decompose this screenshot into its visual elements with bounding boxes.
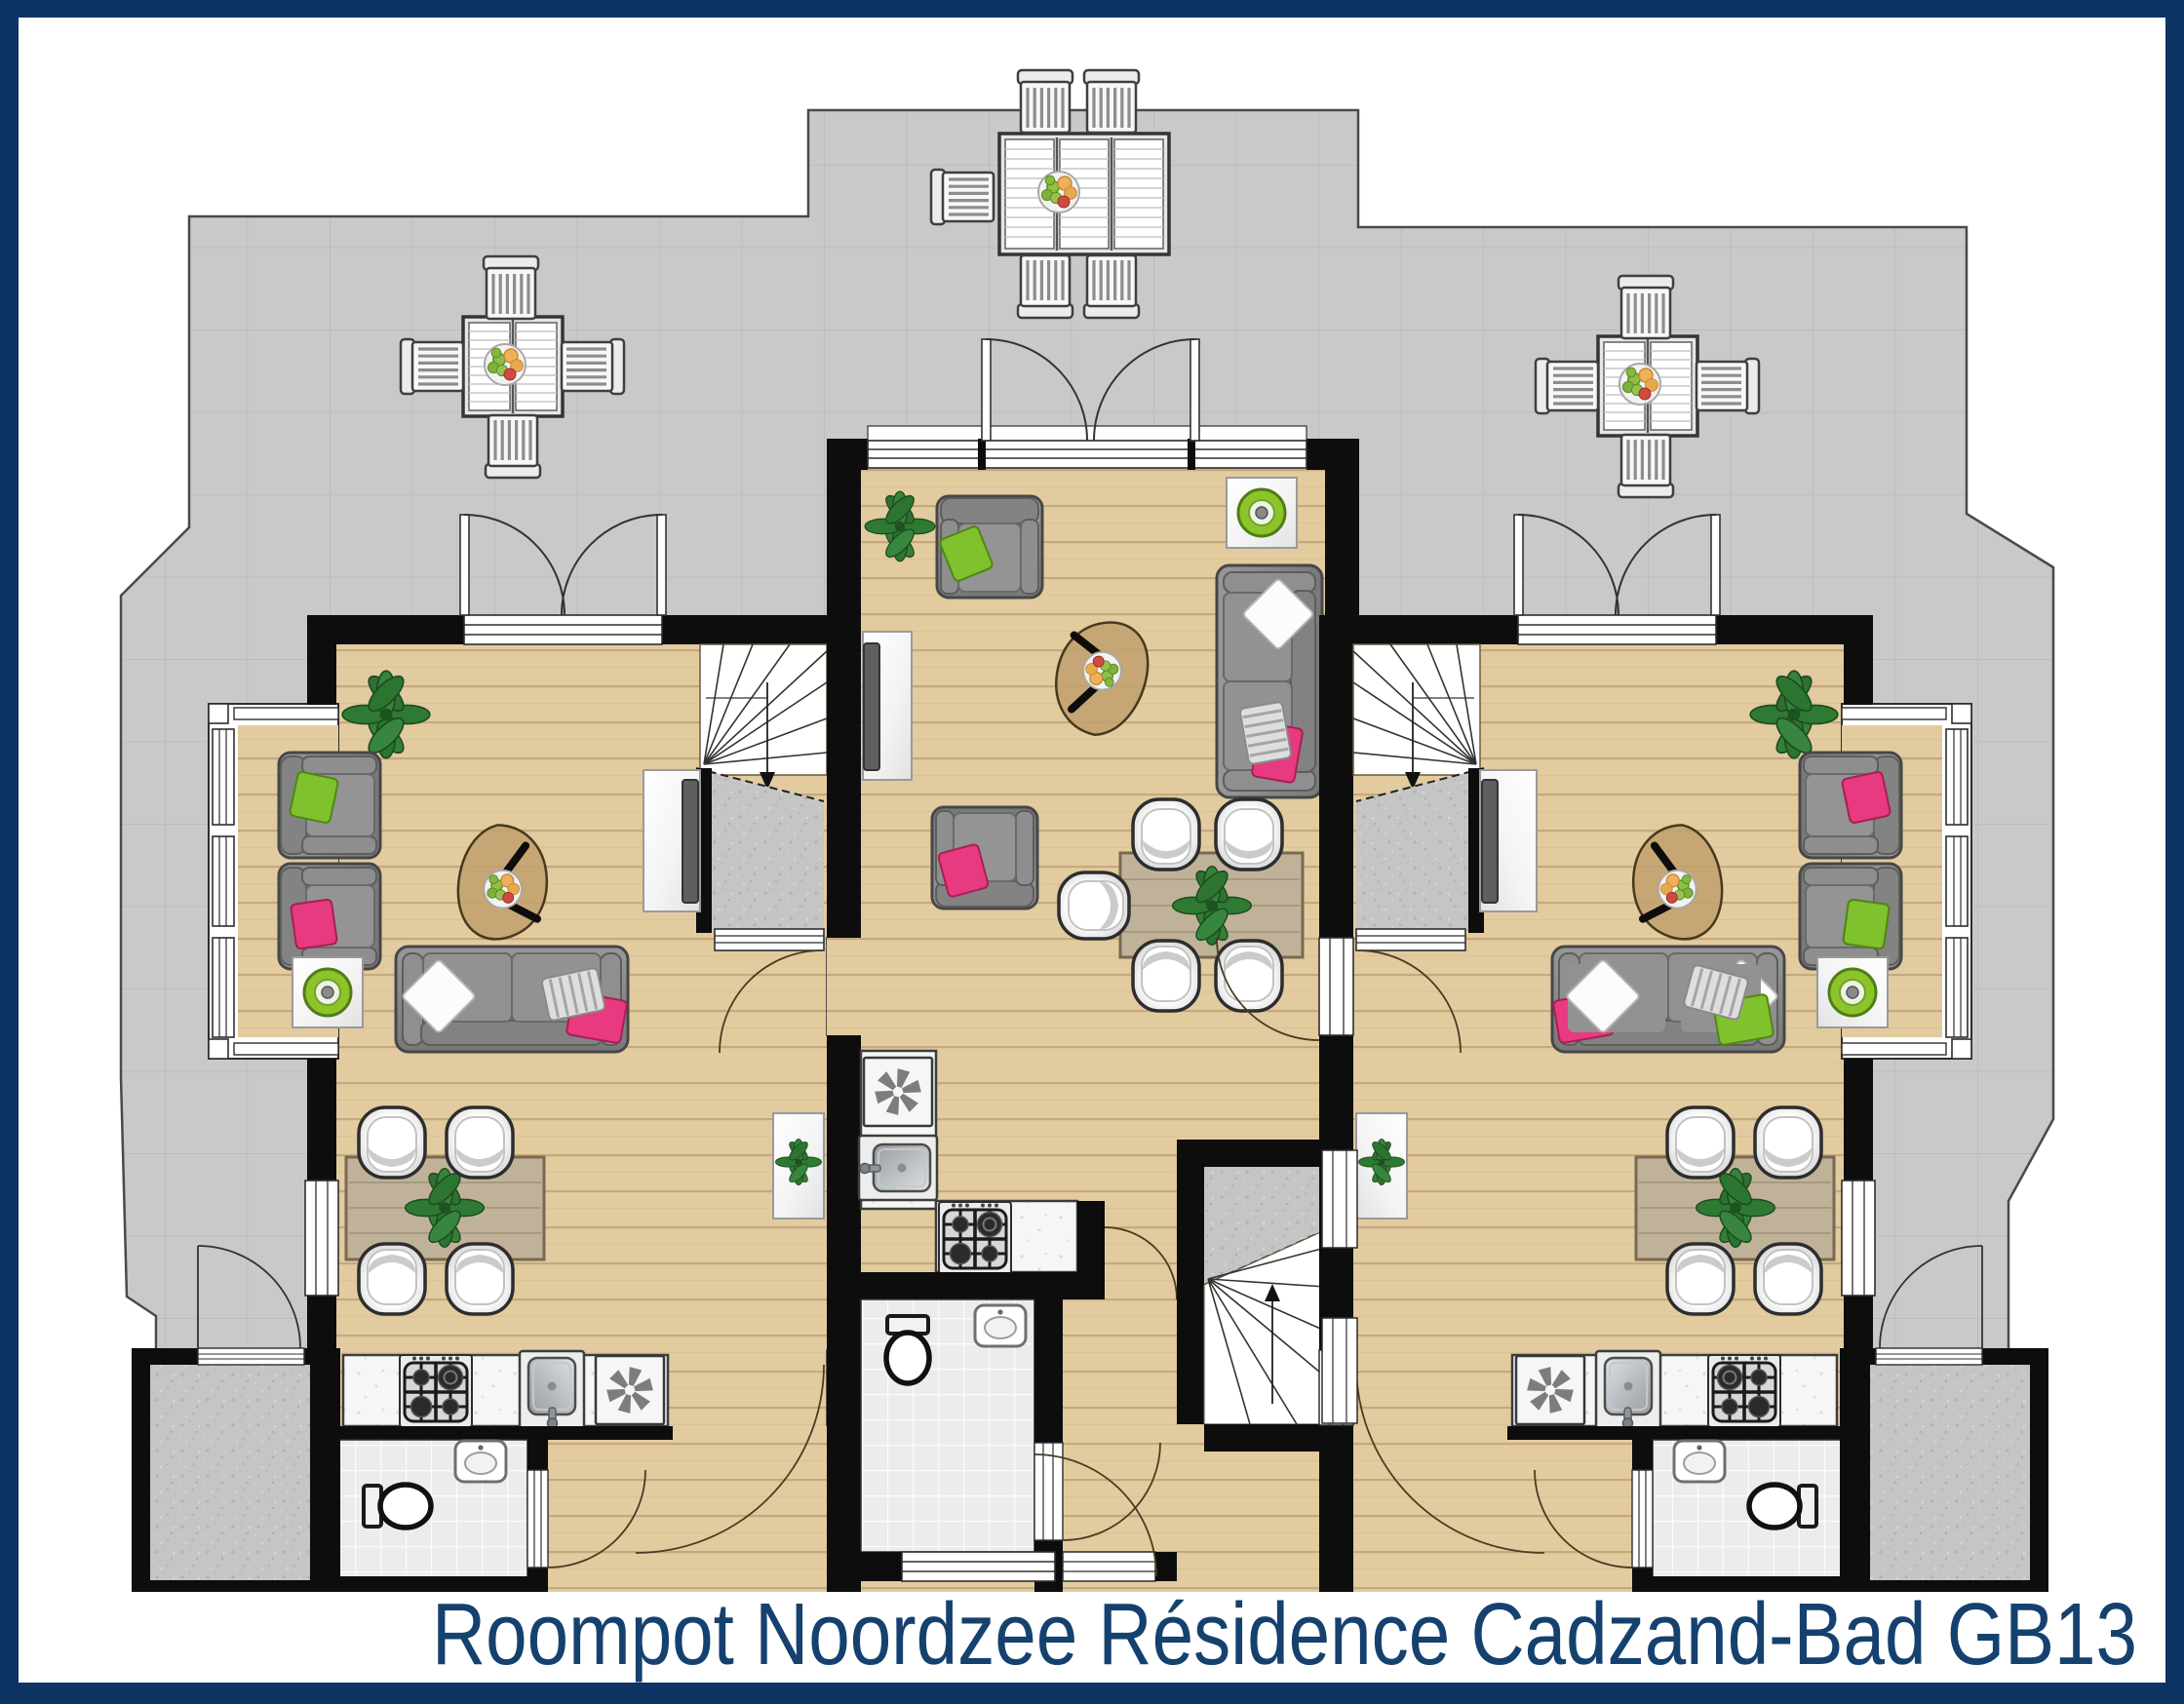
svg-text:Roompot Noordzee Résidence Cad: Roompot Noordzee Résidence Cadzand-Bad G…: [432, 1586, 2137, 1684]
